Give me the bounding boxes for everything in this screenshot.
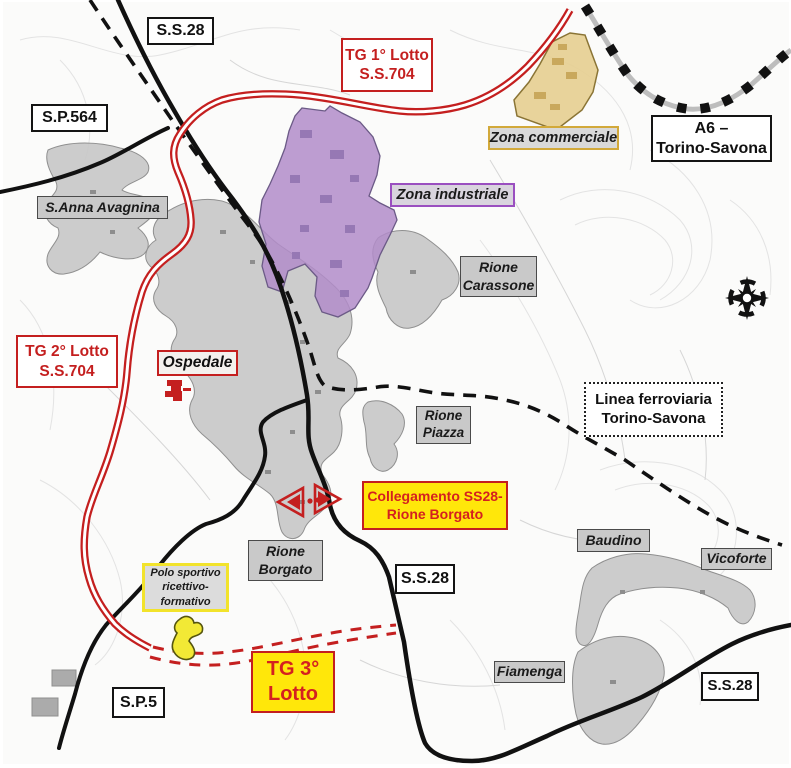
a6-line1: A6 – bbox=[695, 119, 729, 139]
district-label-rione-carassone: Rione Carassone bbox=[460, 256, 537, 297]
district-label-baudino: Baudino bbox=[577, 529, 650, 552]
polo-line3: formativo bbox=[160, 595, 210, 609]
tg3-lotto-line1: TG 3° bbox=[267, 657, 319, 682]
borgato-line1: Rione bbox=[266, 543, 305, 561]
tg3-lotto-line2: Lotto bbox=[268, 682, 318, 707]
district-label-fiamenga: Fiamenga bbox=[494, 661, 565, 683]
tg1-lotto-line2: S.S.704 bbox=[359, 65, 414, 84]
tg3-lotto-label: TG 3° Lotto bbox=[251, 651, 335, 713]
road-label-ss28-south: S.S.28 bbox=[701, 672, 759, 701]
borgato-line2: Borgato bbox=[259, 561, 313, 579]
polo-sportivo-label: Polo sportivo ricettivo- formativo bbox=[142, 563, 229, 612]
carassone-line1: Rione bbox=[479, 259, 518, 277]
tg1-lotto-label: TG 1° Lotto S.S.704 bbox=[341, 38, 433, 92]
road-label-sp5: S.P.5 bbox=[112, 687, 165, 718]
tg2-lotto-label: TG 2° Lotto S.S.704 bbox=[16, 335, 118, 388]
piazza-line1: Rione bbox=[425, 408, 463, 425]
tg1-lotto-line1: TG 1° Lotto bbox=[345, 46, 429, 65]
ospedale-label: Ospedale bbox=[157, 350, 238, 376]
zona-commerciale-label: Zona commerciale bbox=[488, 126, 619, 150]
district-label-rione-borgato: Rione Borgato bbox=[248, 540, 323, 581]
piazza-line2: Piazza bbox=[423, 425, 464, 442]
collegamento-label: Collegamento SS28- Rione Borgato bbox=[362, 481, 508, 530]
tg2-lotto-line1: TG 2° Lotto bbox=[25, 342, 109, 361]
polo-line1: Polo sportivo bbox=[150, 566, 220, 580]
collegamento-line2: Rione Borgato bbox=[387, 506, 483, 524]
railway-line1: Linea ferroviaria bbox=[595, 391, 712, 410]
railway-line2: Torino-Savona bbox=[602, 410, 706, 429]
railway-label: Linea ferroviaria Torino-Savona bbox=[584, 382, 723, 437]
tg2-lotto-line2: S.S.704 bbox=[39, 362, 94, 381]
district-label-rione-piazza: Rione Piazza bbox=[416, 406, 471, 444]
district-label-sanna-avagnina: S.Anna Avagnina bbox=[37, 196, 168, 219]
road-label-ss28-north: S.S.28 bbox=[147, 17, 214, 45]
polo-line2: ricettivo- bbox=[162, 580, 208, 594]
map-canvas: S.S.28 TG 1° Lotto S.S.704 S.P.564 A6 – … bbox=[0, 0, 791, 768]
road-label-ss28-mid: S.S.28 bbox=[395, 564, 455, 594]
collegamento-line1: Collegamento SS28- bbox=[367, 488, 502, 506]
a6-motorway-label: A6 – Torino-Savona bbox=[651, 115, 772, 162]
district-label-vicoforte: Vicoforte bbox=[701, 548, 772, 570]
a6-line2: Torino-Savona bbox=[656, 139, 767, 159]
road-label-sp564: S.P.564 bbox=[31, 104, 108, 132]
carassone-line2: Carassone bbox=[463, 277, 535, 295]
zona-industriale-label: Zona industriale bbox=[390, 183, 515, 207]
